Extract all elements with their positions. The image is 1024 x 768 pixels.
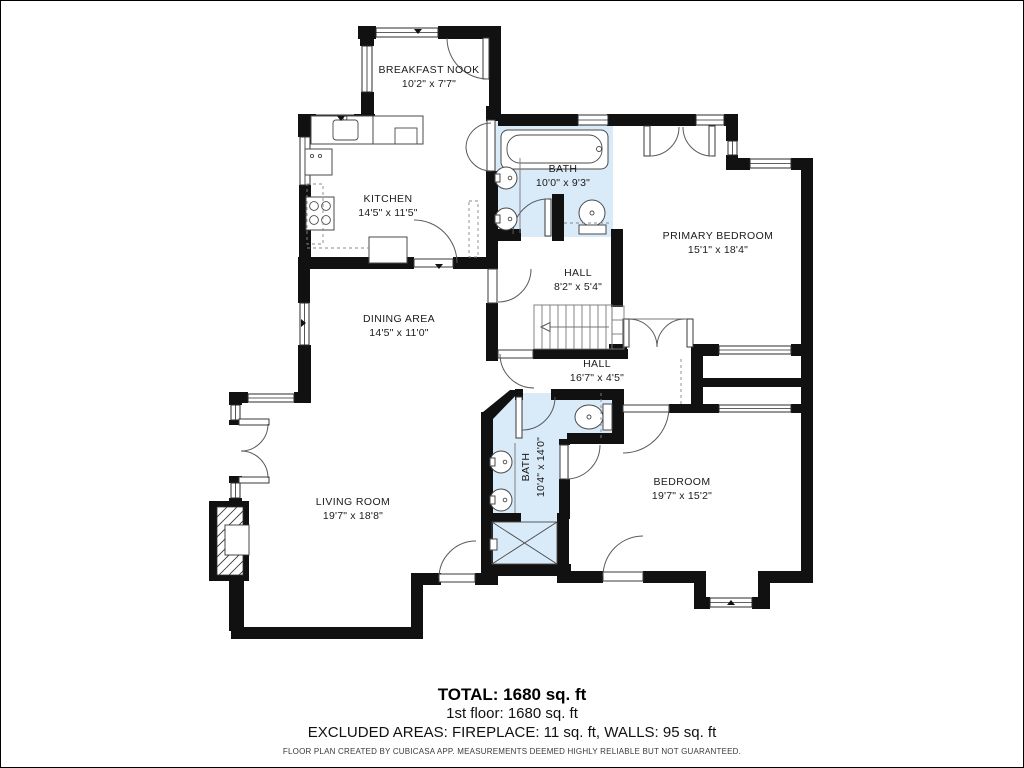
window [696, 115, 724, 125]
window [248, 394, 294, 402]
room-dims-hall-upper: 8'2" x 5'4" [554, 281, 602, 293]
room-label-primary-bedroom: PRIMARY BEDROOM [663, 230, 774, 242]
dishwasher-icon [305, 149, 332, 175]
sliding-closet-door [719, 405, 791, 412]
disclaimer-text: FLOOR PLAN CREATED BY CUBICASA APP. MEAS… [283, 747, 741, 756]
french-doors-living [239, 419, 269, 483]
floor-plan: BREAKFAST NOOK 10'2" x 7'7" KITCHEN 14'5… [1, 1, 1023, 767]
sink-icon [495, 167, 517, 189]
double-door-primary-entry [623, 319, 693, 347]
summary-block: TOTAL: 1680 sq. ft 1st floor: 1680 sq. f… [283, 685, 741, 756]
floor-area-text: 1st floor: 1680 sq. ft [446, 705, 579, 722]
door-living-exterior [439, 541, 476, 582]
double-door-kitchen [466, 120, 495, 171]
door-dining-hall [488, 269, 531, 303]
sink-icon [490, 489, 512, 511]
room-dims-dining-area: 14'5" x 11'0" [369, 327, 428, 339]
linen-closet-shelves [612, 306, 624, 349]
door-bedroom-exterior [603, 536, 643, 581]
room-label-hall-lower: HALL [583, 358, 611, 370]
door-kitchen-dining [414, 220, 457, 267]
room-label-living-room: LIVING ROOM [316, 496, 390, 508]
room-dims-bedroom: 19'7" x 15'2" [652, 490, 712, 502]
sliding-closet-door [719, 346, 791, 354]
kitchen-cabinet [369, 237, 407, 263]
room-label-bedroom: BEDROOM [653, 476, 710, 488]
room-dims-living-room: 19'7" x 18'8" [323, 510, 383, 522]
total-area-text: TOTAL: 1680 sq. ft [438, 685, 587, 704]
room-dims-bath-upper: 10'0" x 9'3" [536, 177, 590, 189]
window [362, 46, 372, 92]
sink-icon [495, 208, 517, 230]
room-label-bath-upper: BATH [549, 163, 578, 175]
room-label-kitchen: KITCHEN [364, 193, 413, 205]
door-under-stairs [498, 350, 534, 388]
window [231, 483, 240, 498]
room-label-bath-lower: BATH [520, 453, 532, 482]
room-dims-hall-lower: 16'7" x 4'5" [570, 372, 624, 384]
kitchen-counter [311, 116, 423, 144]
room-dims-primary-bedroom: 15'1" x 18'4" [688, 244, 748, 256]
stairs-icon [534, 305, 612, 349]
window [578, 115, 608, 125]
room-label-hall-upper: HALL [564, 267, 592, 279]
door-bath-bedroom [560, 445, 600, 479]
room-label-breakfast-nook: BREAKFAST NOOK [378, 64, 479, 76]
closet-double-door-primary [644, 126, 715, 156]
window [231, 405, 240, 420]
excluded-areas-text: EXCLUDED AREAS: FIREPLACE: 11 sq. ft, WA… [308, 724, 717, 741]
toilet-icon [575, 404, 612, 430]
window [376, 28, 438, 37]
sink-icon [490, 451, 512, 473]
window [728, 141, 737, 155]
door-bedroom-entry [623, 405, 669, 453]
room-dims-bath-lower: 10'4" x 14'0" [535, 437, 547, 497]
floor-plan-page: BREAKFAST NOOK 10'2" x 7'7" KITCHEN 14'5… [0, 0, 1024, 768]
room-dims-breakfast-nook: 10'2" x 7'7" [402, 78, 456, 90]
window [750, 159, 791, 168]
room-dims-kitchen: 14'5" x 11'5" [358, 207, 417, 219]
toilet-icon [579, 200, 606, 234]
stove-icon [306, 197, 334, 230]
room-label-dining-area: DINING AREA [363, 313, 435, 325]
